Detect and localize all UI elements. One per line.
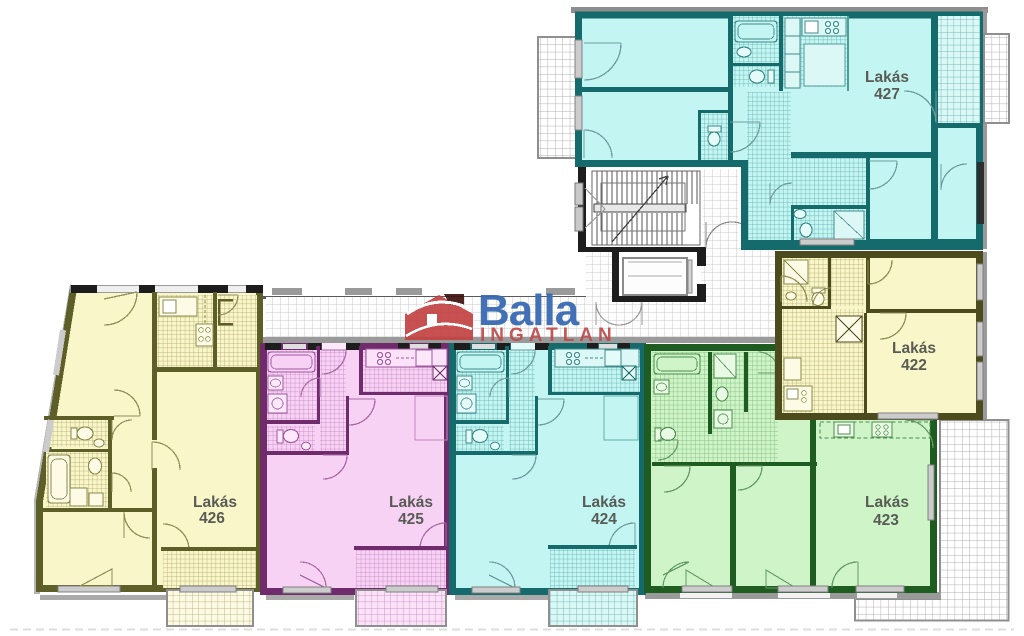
svg-text:INGATLAN: INGATLAN (480, 325, 617, 346)
svg-text:425: 425 (398, 511, 424, 528)
svg-text:422: 422 (901, 357, 927, 374)
svg-text:424: 424 (591, 511, 617, 528)
svg-text:427: 427 (874, 86, 900, 103)
svg-text:Lakás: Lakás (865, 69, 909, 86)
svg-text:Lakás: Lakás (892, 340, 936, 357)
svg-text:Lakás: Lakás (389, 494, 433, 511)
svg-text:Lakás: Lakás (582, 494, 626, 511)
svg-text:Lakás: Lakás (865, 494, 909, 511)
svg-text:Lakás: Lakás (193, 494, 237, 511)
svg-text:423: 423 (873, 512, 899, 529)
svg-text:426: 426 (199, 510, 225, 527)
